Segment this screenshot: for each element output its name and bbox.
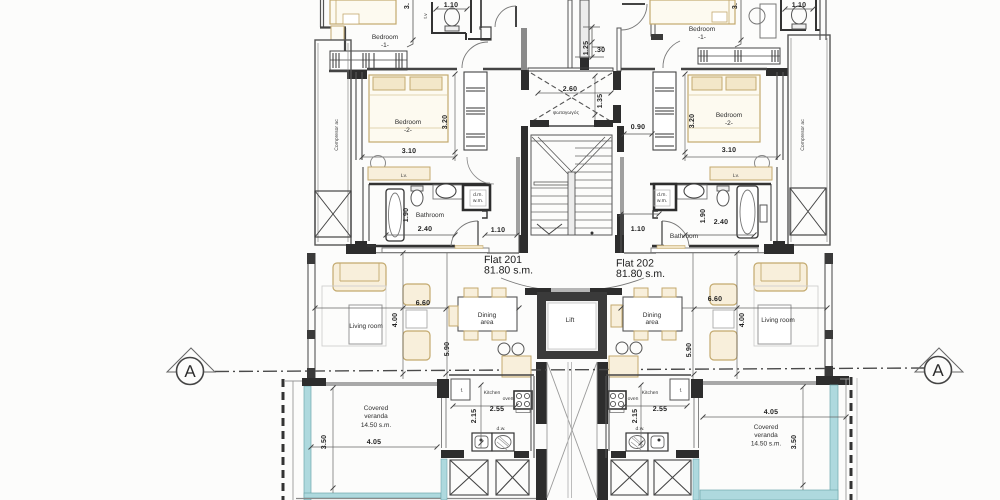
svg-text:1.10: 1.10: [491, 227, 505, 234]
svg-text:-1-: -1-: [698, 34, 706, 41]
svg-text:2.40: 2.40: [714, 219, 728, 226]
svg-text:6.60: 6.60: [416, 300, 430, 307]
svg-text:3.20: 3.20: [442, 115, 449, 129]
svg-text:Lv.: Lv.: [401, 173, 407, 179]
svg-text:-2-: -2-: [725, 120, 733, 127]
svg-text:2.60: 2.60: [563, 86, 577, 93]
svg-text:.30: .30: [595, 47, 605, 54]
svg-text:1.35: 1.35: [597, 94, 604, 108]
svg-text:Covered: Covered: [754, 424, 779, 431]
svg-text:Bedroom: Bedroom: [395, 119, 421, 126]
svg-text:w.m.: w.m.: [473, 198, 483, 204]
svg-text:Living room: Living room: [349, 323, 383, 330]
svg-text:Bathroom: Bathroom: [416, 212, 444, 219]
svg-text:veranda: veranda: [364, 413, 388, 420]
svg-text:3.10: 3.10: [722, 147, 736, 154]
svg-text:oven: oven: [628, 396, 639, 402]
svg-text:Compresor ac: Compresor ac: [800, 119, 806, 151]
svg-text:d.w.: d.w.: [636, 426, 645, 432]
svg-text:Lift: Lift: [566, 317, 575, 324]
svg-text:area: area: [480, 319, 493, 326]
svg-text:1.10: 1.10: [792, 2, 806, 9]
svg-text:3.20: 3.20: [689, 114, 696, 128]
svg-text:Bedroom: Bedroom: [716, 112, 742, 119]
svg-text:0.90: 0.90: [631, 124, 645, 131]
svg-text:3.: 3.: [404, 3, 411, 9]
svg-text:Compresor ac: Compresor ac: [334, 119, 340, 151]
svg-text:area: area: [645, 319, 658, 326]
svg-text:2.40: 2.40: [418, 226, 432, 233]
svg-text:Bedroom: Bedroom: [689, 26, 715, 33]
svg-text:3.10: 3.10: [402, 148, 416, 155]
svg-text:-1-: -1-: [381, 42, 389, 49]
svg-text:5.90: 5.90: [444, 342, 451, 356]
svg-text:t.v: t.v: [423, 13, 429, 19]
svg-text:4.05: 4.05: [764, 409, 778, 416]
svg-text:14.50 s.m.: 14.50 s.m.: [361, 422, 392, 429]
svg-text:veranda: veranda: [754, 432, 778, 439]
svg-text:1.90: 1.90: [403, 208, 410, 222]
svg-text:Kitchen: Kitchen: [642, 390, 659, 396]
svg-text:4.00: 4.00: [392, 313, 399, 327]
svg-text:2.15: 2.15: [632, 409, 639, 423]
svg-text:oven: oven: [503, 396, 514, 402]
svg-text:4.05: 4.05: [367, 439, 381, 446]
svg-text:w.m.: w.m.: [657, 198, 667, 204]
svg-text:d.w.: d.w.: [497, 426, 506, 432]
svg-text:Covered: Covered: [364, 405, 389, 412]
svg-text:Dining: Dining: [643, 312, 662, 319]
svg-text:4.00: 4.00: [739, 313, 746, 327]
svg-text:5.90: 5.90: [686, 343, 693, 357]
svg-text:Bathroom: Bathroom: [670, 233, 698, 240]
svg-text:A: A: [932, 361, 944, 380]
svg-text:81.80 s.m.: 81.80 s.m.: [616, 268, 665, 280]
svg-text:3.: 3.: [732, 3, 739, 9]
svg-text:3.50: 3.50: [321, 435, 328, 449]
svg-text:Lv.: Lv.: [733, 173, 739, 179]
svg-text:2.15: 2.15: [471, 409, 478, 423]
svg-text:2.55: 2.55: [653, 406, 667, 413]
svg-text:Living room: Living room: [761, 317, 795, 324]
svg-text:1.25: 1.25: [583, 41, 590, 55]
svg-text:f.: f.: [680, 388, 683, 394]
svg-text:A: A: [184, 362, 196, 381]
svg-text:2.55: 2.55: [490, 406, 504, 413]
svg-text:Dining: Dining: [478, 312, 497, 319]
svg-text:Bedroom: Bedroom: [372, 34, 398, 41]
svg-text:-2-: -2-: [404, 127, 412, 134]
svg-text:6.60: 6.60: [708, 296, 722, 303]
svg-text:Kitchen: Kitchen: [484, 390, 501, 396]
svg-text:3.50: 3.50: [791, 435, 798, 449]
svg-text:φωταγωγός: φωταγωγός: [553, 110, 580, 116]
svg-text:81.80 s.m.: 81.80 s.m.: [484, 265, 533, 277]
svg-text:1.10: 1.10: [444, 2, 458, 9]
svg-text:14.50 s.m.: 14.50 s.m.: [751, 441, 782, 448]
svg-text:1.90: 1.90: [700, 209, 707, 223]
svg-text:f.: f.: [461, 388, 464, 394]
svg-text:1.10: 1.10: [631, 226, 645, 233]
